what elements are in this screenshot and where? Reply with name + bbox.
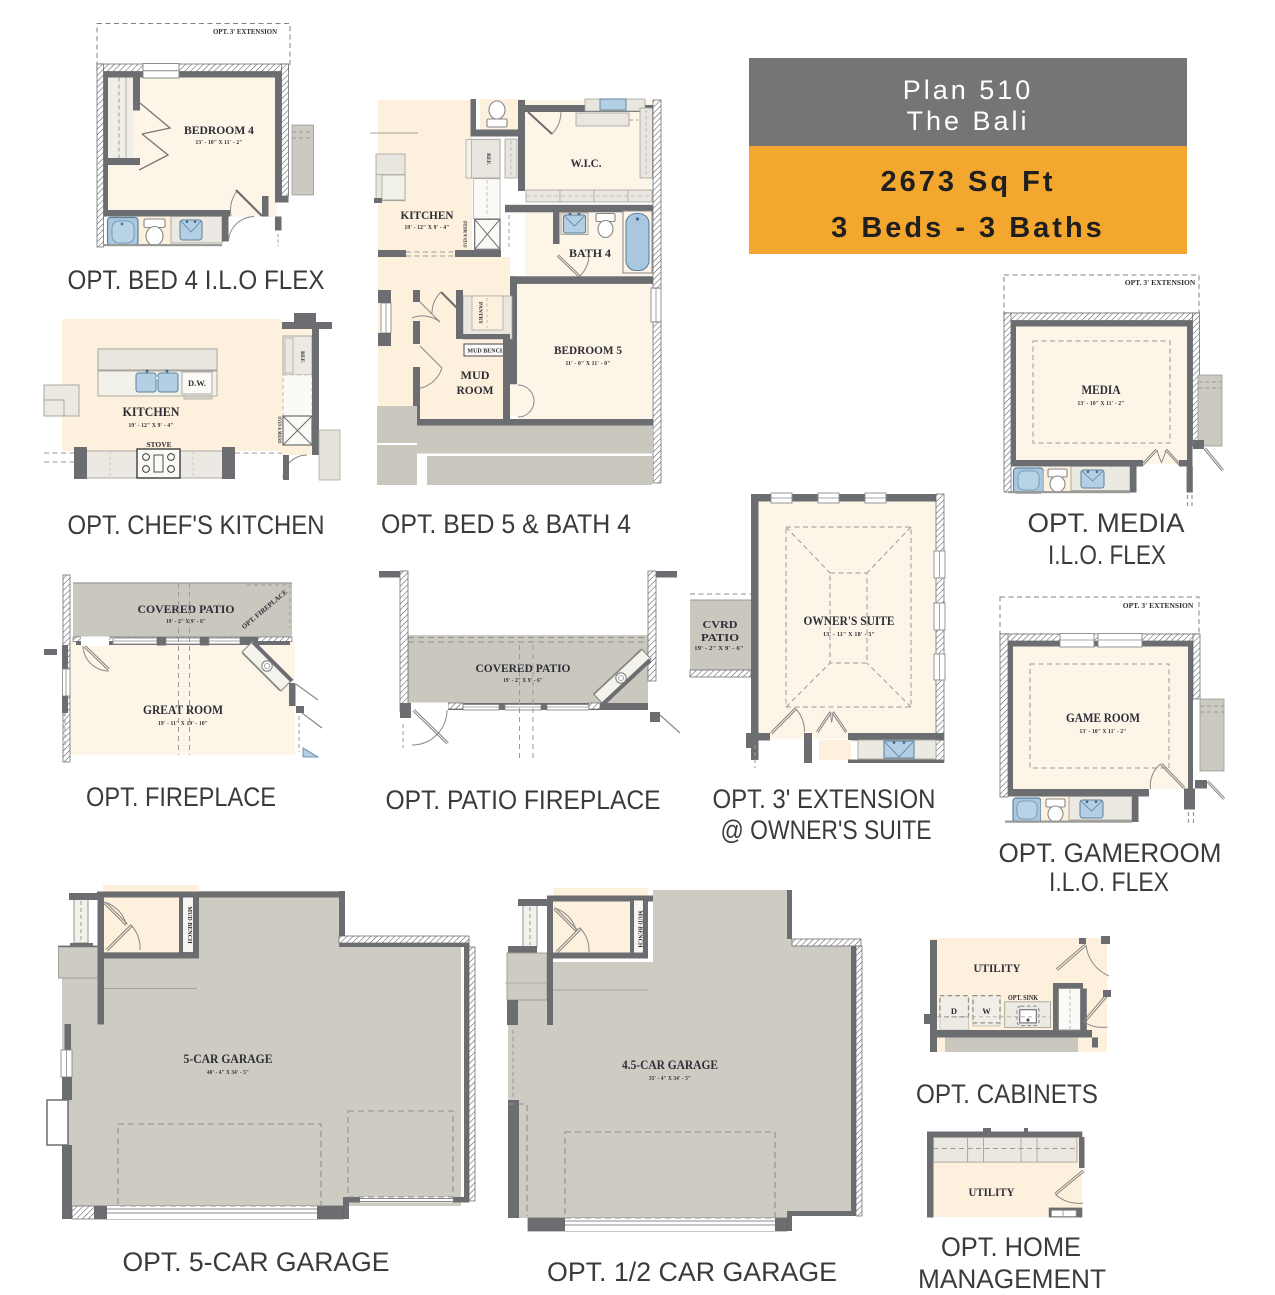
svg-text:OPT. PATIO FIREPLACE: OPT. PATIO FIREPLACE [386,785,661,815]
svg-text:OPT. BED 5 & BATH 4: OPT. BED 5 & BATH 4 [381,509,631,539]
svg-text:13' - 10" X 11' - 2": 13' - 10" X 11' - 2" [1078,400,1125,407]
svg-text:OPT. 3' EXTENSION: OPT. 3' EXTENSION [213,28,277,36]
svg-text:UTILITY: UTILITY [974,963,1022,975]
svg-text:BATH 4: BATH 4 [569,248,611,260]
svg-text:MUD BENCH: MUD BENCH [637,910,643,947]
svg-text:5-CAR GARAGE: 5-CAR GARAGE [184,1051,273,1066]
svg-text:MEDIA: MEDIA [1082,383,1121,397]
svg-text:OPT. MEDIA: OPT. MEDIA [1028,508,1185,538]
svg-text:MANAGEMENT: MANAGEMENT [918,1264,1106,1294]
svg-text:3 Beds - 3 Baths: 3 Beds - 3 Baths [831,212,1105,244]
svg-text:D.W.: D.W. [188,378,206,388]
svg-text:I.L.O. FLEX: I.L.O. FLEX [1049,867,1169,897]
svg-text:BEDROOM 4: BEDROOM 4 [184,123,254,137]
svg-text:19' - 2" X 9' - 6": 19' - 2" X 9' - 6" [503,677,543,684]
svg-text:35' - 4" X 34' - 5": 35' - 4" X 34' - 5" [649,1075,691,1082]
svg-text:W.I.C.: W.I.C. [571,156,602,170]
svg-text:OPT. SINK: OPT. SINK [1008,993,1038,1002]
svg-text:OPT. 5-CAR GARAGE: OPT. 5-CAR GARAGE [123,1247,390,1277]
svg-text:OPT. 3' EXTENSION: OPT. 3' EXTENSION [1125,278,1196,287]
svg-text:OPT. 3' EXTENSION: OPT. 3' EXTENSION [1123,601,1194,610]
svg-text:OPT. FIREPLACE: OPT. FIREPLACE [86,782,276,812]
svg-text:GAME ROOM: GAME ROOM [1066,711,1140,725]
svg-text:OPT. CHEF'S KITCHEN: OPT. CHEF'S KITCHEN [68,510,325,540]
svg-text:OVEN & MICRO: OVEN & MICRO [464,220,469,247]
svg-text:19' - 2" X 9' - 6": 19' - 2" X 9' - 6" [166,618,206,625]
svg-text:OPT. GAMEROOM: OPT. GAMEROOM [999,838,1222,868]
svg-text:MUD BENCH: MUD BENCH [467,349,504,355]
svg-text:UTILITY: UTILITY [969,1187,1016,1199]
svg-text:19' - 12" X 9' - 4": 19' - 12" X 9' - 4" [405,224,450,231]
svg-text:ROOM: ROOM [457,383,494,397]
svg-text:OPT. BED 4 I.L.O FLEX: OPT. BED 4 I.L.O FLEX [68,265,325,295]
svg-text:11' - 0" X 11' - 0": 11' - 0" X 11' - 0" [566,360,611,367]
svg-text:REF.: REF. [485,153,491,165]
svg-text:OPT. 3' EXTENSION: OPT. 3' EXTENSION [713,784,936,814]
svg-text:GREAT ROOM: GREAT ROOM [143,702,223,717]
svg-text:19' - 2" X 9' - 6": 19' - 2" X 9' - 6" [694,645,743,652]
svg-text:STOVE: STOVE [146,440,171,449]
svg-text:W: W [982,1006,991,1016]
svg-text:Plan 510: Plan 510 [903,75,1034,105]
svg-text:OWNER'S SUITE: OWNER'S SUITE [804,613,895,628]
svg-text:4.5-CAR GARAGE: 4.5-CAR GARAGE [622,1057,718,1072]
svg-text:COVERED PATIO: COVERED PATIO [138,604,235,616]
svg-text:COVERED PATIO: COVERED PATIO [476,663,571,675]
svg-text:PATIO: PATIO [701,633,739,644]
svg-text:19' - 12" X 9' - 4": 19' - 12" X 9' - 4" [129,422,174,429]
svg-text:PANTRY: PANTRY [477,302,483,324]
svg-text:REF.: REF. [299,351,305,363]
svg-text:KITCHEN: KITCHEN [123,405,180,419]
svg-text:13' - 10" X 11' - 2": 13' - 10" X 11' - 2" [1080,728,1127,735]
svg-text:MUD BENCH: MUD BENCH [186,906,192,943]
svg-text:MUD: MUD [461,368,490,382]
svg-text:The Bali: The Bali [906,106,1029,136]
svg-text:CVRD: CVRD [703,620,738,631]
svg-text:40' - 4" X 34' - 5": 40' - 4" X 34' - 5" [207,1069,249,1076]
svg-text:BEDROOM 5: BEDROOM 5 [554,343,622,357]
svg-text:D: D [951,1006,957,1016]
svg-text:OVEN & MICRO: OVEN & MICRO [276,417,281,444]
svg-text:I.L.O. FLEX: I.L.O. FLEX [1048,540,1166,570]
svg-text:19' - 11" X 19' - 10": 19' - 11" X 19' - 10" [158,720,208,727]
svg-text:KITCHEN: KITCHEN [401,208,454,222]
svg-text:2673 Sq Ft: 2673 Sq Ft [880,166,1055,198]
svg-text:OPT. 1/2 CAR GARAGE: OPT. 1/2 CAR GARAGE [547,1257,837,1287]
svg-text:OPT. CABINETS: OPT. CABINETS [916,1079,1098,1109]
svg-text:@ OWNER'S SUITE: @ OWNER'S SUITE [721,815,932,845]
svg-text:OPT. HOME: OPT. HOME [941,1232,1081,1262]
svg-text:13' - 10" X 11' - 2": 13' - 10" X 11' - 2" [196,139,243,146]
svg-text:13' - 11" X 18' - 3": 13' - 11" X 18' - 3" [823,631,875,638]
